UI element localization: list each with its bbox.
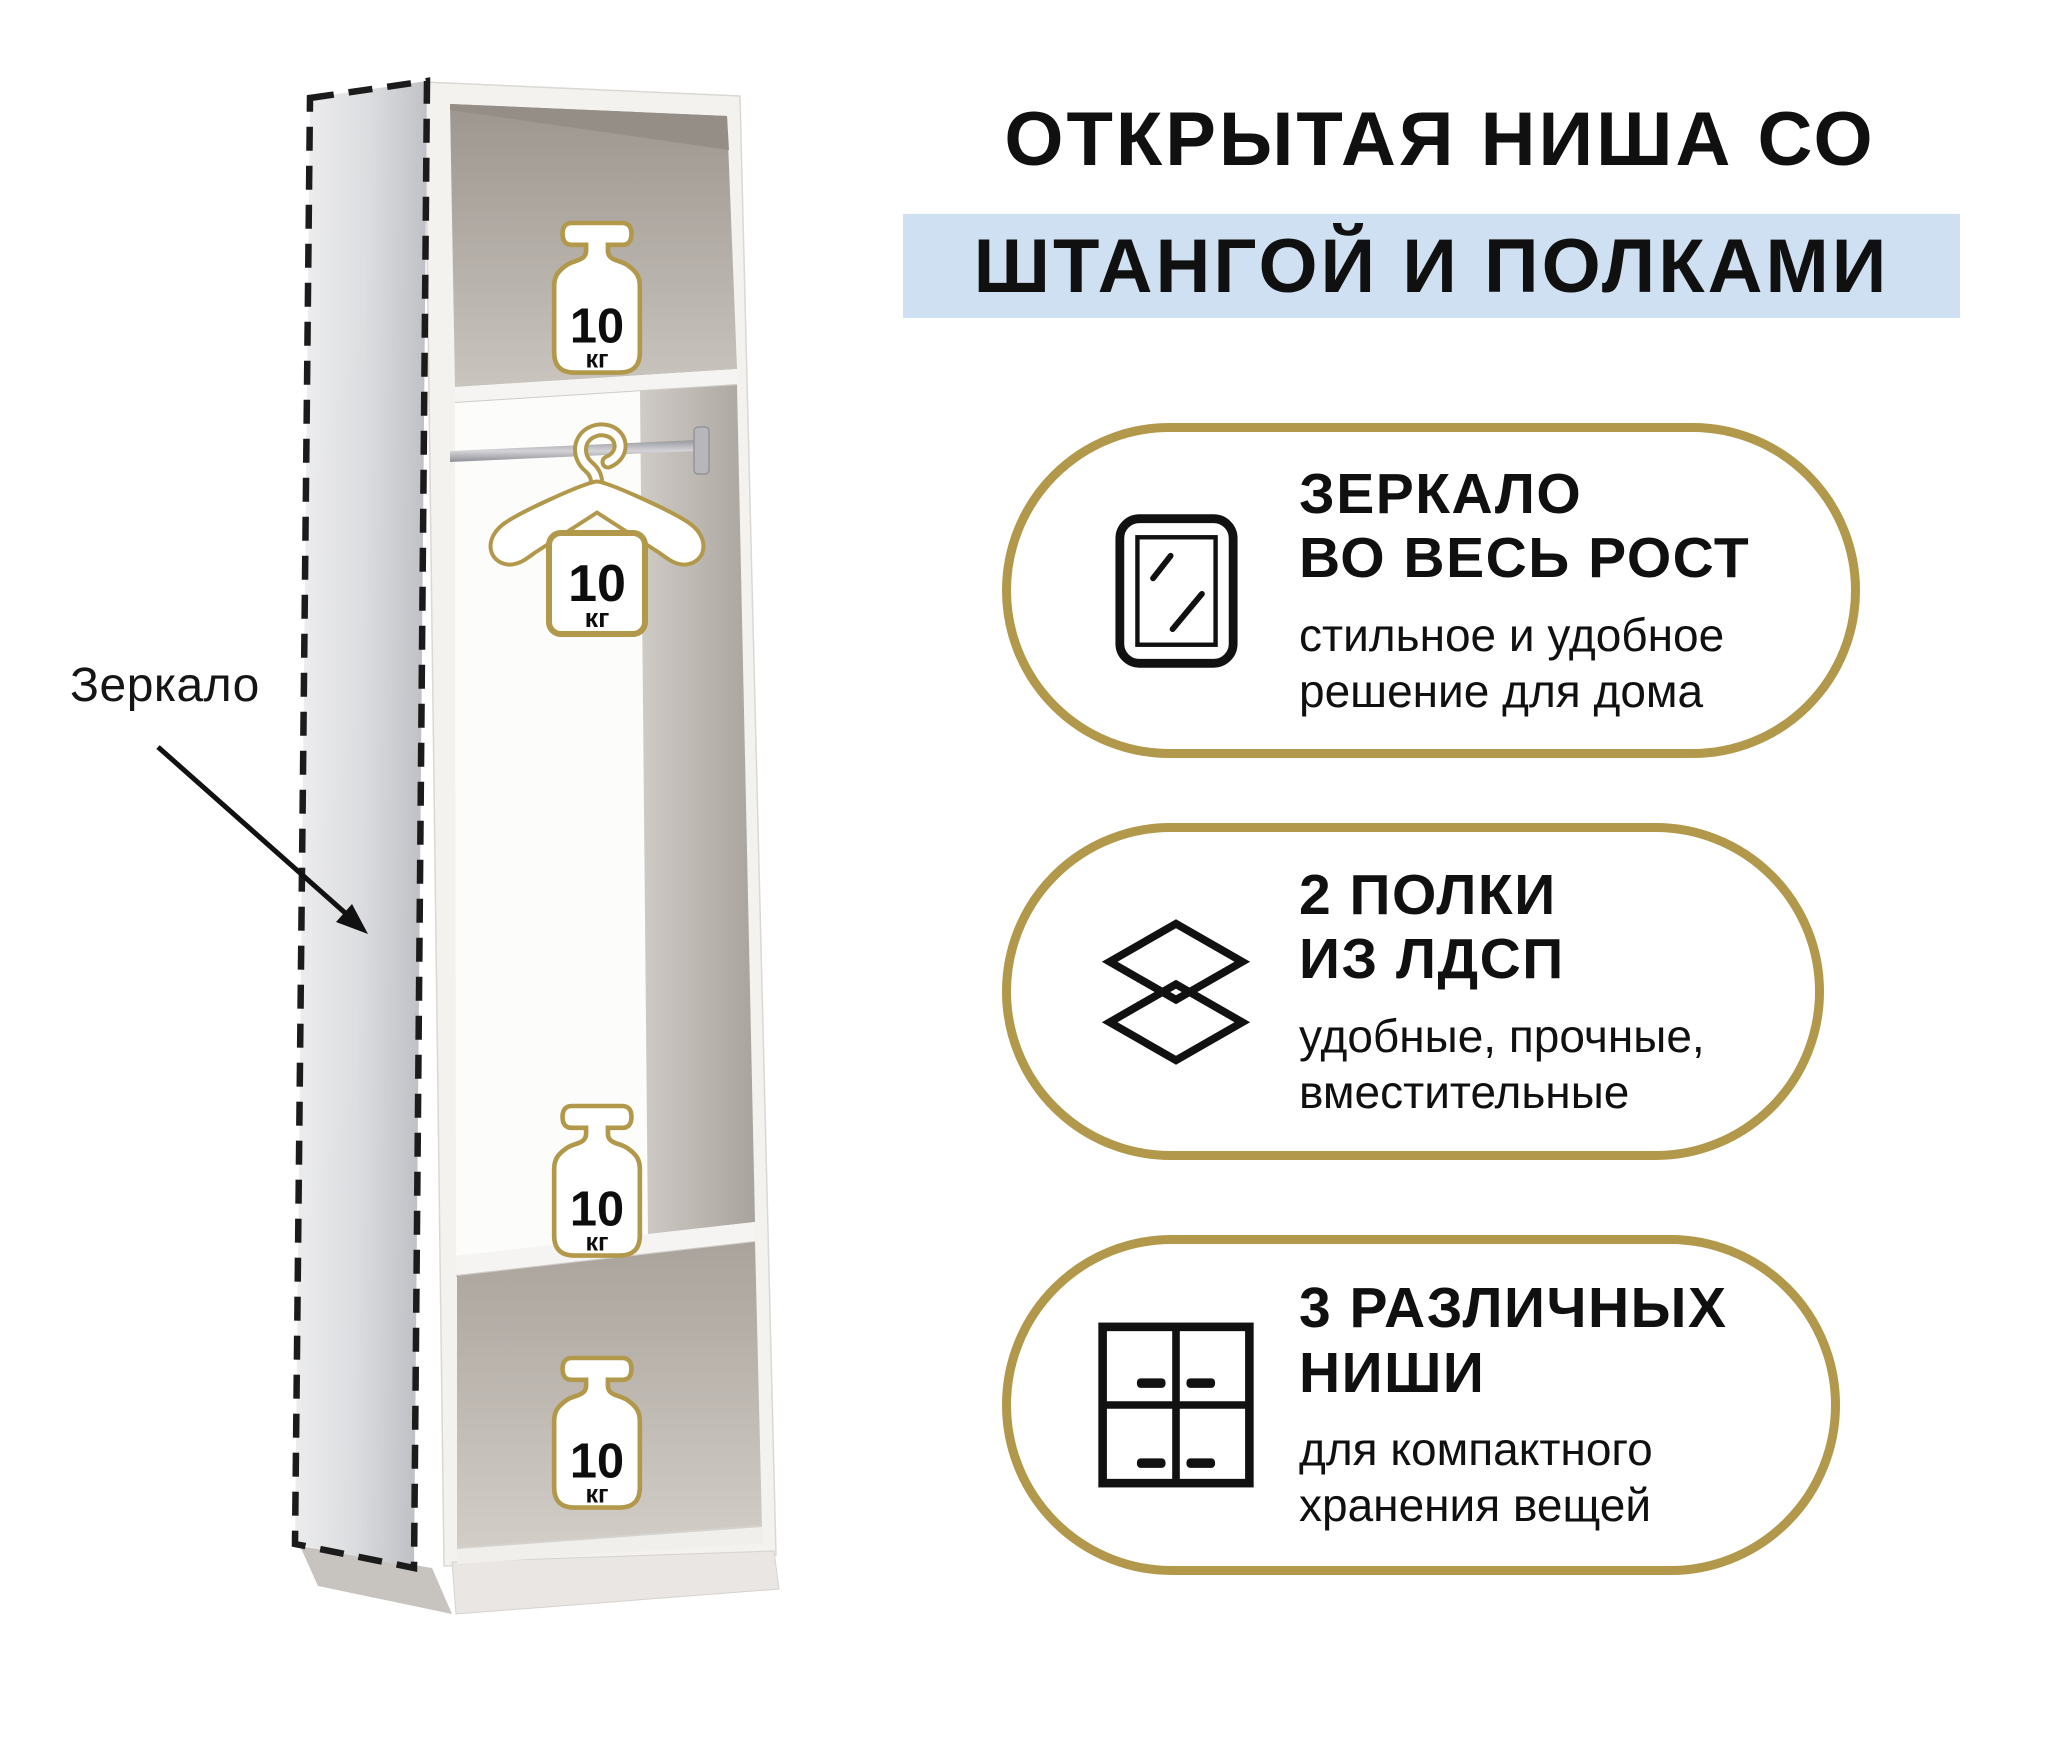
feature-desc-line: хранения вещей xyxy=(1299,1477,1807,1533)
feature-card-shelves: 2 ПОЛКИ ИЗ ЛДСП удобные, прочные, вмести… xyxy=(1002,823,1824,1160)
feature-desc-line: удобные, прочные, xyxy=(1299,1008,1791,1064)
feature-title-line: 2 ПОЛКИ xyxy=(1299,863,1791,927)
feature-card-niches: 3 РАЗЛИЧНЫХ НИШИ для компактного хранени… xyxy=(1002,1235,1840,1575)
weight-unit: кг xyxy=(585,1480,608,1508)
weight-unit: кг xyxy=(585,1228,608,1256)
weight-badge-bottom-niche: 10 кг xyxy=(554,1358,640,1508)
feature-desc-line: для компактного xyxy=(1299,1421,1807,1477)
layers-icon xyxy=(1081,914,1271,1070)
rod-bracket xyxy=(694,427,709,474)
wardrobe-diagram: 10 кг 10 кг 10 кг 10 кг xyxy=(0,0,1000,1757)
feature-desc-line: стильное и удобное xyxy=(1299,607,1827,663)
product-infographic: 10 кг 10 кг 10 кг 10 кг xyxy=(0,0,2048,1757)
page-title-line-2-highlight: ШТАНГОЙ И ПОЛКАМИ xyxy=(903,214,1960,318)
weight-badge-middle-shelf: 10 кг xyxy=(554,1106,640,1256)
mirror-label: Зеркало xyxy=(70,658,260,713)
page-title-line-2: ШТАНГОЙ И ПОЛКАМИ xyxy=(974,223,1890,310)
weight-badge-hanger: 10 кг xyxy=(549,533,645,634)
feature-title-line: 3 РАЗЛИЧНЫХ xyxy=(1299,1276,1807,1340)
weight-unit: кг xyxy=(585,603,610,633)
page-title-line-1: ОТКРЫТАЯ НИША СО xyxy=(900,100,1980,180)
feature-title-line: ИЗ ЛДСП xyxy=(1299,927,1791,991)
grid-niches-icon xyxy=(1081,1319,1271,1491)
feature-desc-line: решение для дома xyxy=(1299,663,1827,719)
weight-badge-top-niche: 10 кг xyxy=(554,223,640,373)
feature-desc-line: вместительные xyxy=(1299,1064,1791,1120)
mirror-icon xyxy=(1081,512,1271,670)
feature-title-line: НИШИ xyxy=(1299,1341,1807,1405)
weight-unit: кг xyxy=(585,345,608,373)
mirror-panel xyxy=(295,81,427,1568)
feature-card-mirror: ЗЕРКАЛО ВО ВЕСЬ РОСТ стильное и удобное … xyxy=(1002,423,1860,758)
feature-title-line: ЗЕРКАЛО xyxy=(1299,462,1827,526)
feature-title-line: ВО ВЕСЬ РОСТ xyxy=(1299,526,1827,590)
